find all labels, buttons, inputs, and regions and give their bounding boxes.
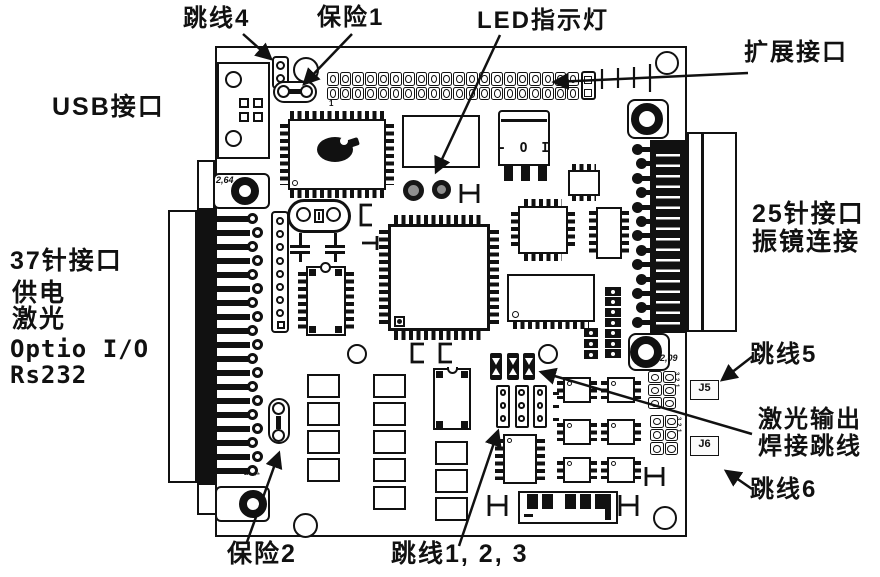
header-pin — [403, 72, 415, 86]
conn25-pin-stripe — [641, 147, 653, 152]
memory-chip — [507, 274, 595, 322]
hole-dim-text: 2,64 — [216, 176, 234, 185]
solder-jumper-arrow — [509, 358, 517, 365]
header-pin — [517, 72, 529, 86]
pad-square — [435, 469, 468, 493]
cap-lead — [334, 254, 337, 262]
header-pin — [390, 72, 402, 86]
label-led-indicator: LED指示灯 — [477, 8, 609, 34]
soic8-grid-dot — [567, 423, 572, 428]
header-pin — [529, 72, 541, 86]
conn37-pin-ring — [252, 339, 263, 350]
vheader9-pin — [276, 257, 284, 265]
vheader6-cell — [605, 339, 621, 348]
label-jumper4: 跳线4 — [183, 6, 250, 32]
soic8-grid-pins — [635, 461, 641, 479]
bottom-pad-bar — [605, 494, 611, 520]
vheader6-cell — [605, 297, 621, 306]
qfp2-pins — [568, 212, 575, 249]
jumper4-pin — [276, 61, 285, 70]
j6-header-pin — [650, 442, 664, 455]
label-laser-output-1: 激光输出 — [758, 407, 862, 433]
header-pin — [365, 87, 377, 101]
vheader9-pin — [276, 283, 284, 291]
jumper123-pin — [518, 415, 525, 422]
row-number: 3 — [673, 372, 679, 375]
dsub25-shell — [687, 132, 737, 332]
fuse2-end — [272, 429, 285, 442]
conn25-pin-stripe — [641, 320, 653, 325]
header-pin — [479, 72, 491, 86]
capacitor-plate — [325, 245, 345, 248]
usb-pad — [253, 112, 263, 122]
label-jumper5: 跳线5 — [750, 342, 817, 368]
solder-jumper — [490, 353, 502, 380]
solder-jumpers — [490, 353, 540, 381]
label-jumpers123: 跳线1, 2, 3 — [391, 541, 529, 569]
bottom-pad — [580, 494, 591, 509]
conn37-pin-label: 1 — [259, 472, 263, 479]
conn37-pin — [215, 412, 250, 418]
mini-strip-cell — [584, 328, 598, 337]
conn37-pin-ring — [247, 381, 258, 392]
header-pin — [390, 87, 402, 101]
usb-pad — [225, 130, 242, 147]
j5-header-pin — [648, 371, 662, 383]
conn25-pin-stripe — [641, 262, 653, 267]
led-indicator-2 — [432, 180, 451, 199]
label-fuse1: 保险1 — [317, 5, 384, 31]
label-laser-output-2: 焊接跳线 — [758, 434, 862, 460]
dsub37-body — [195, 210, 217, 482]
soic8-grid-dot — [611, 423, 616, 428]
jumper123-pin — [500, 389, 507, 396]
label-conn37-optio: Optio I/O — [10, 336, 149, 362]
soic8-grid-pins — [591, 461, 597, 479]
dsub25-pin-area — [628, 140, 688, 333]
conn37-pin-ring — [252, 423, 263, 434]
conn37-pin — [215, 398, 250, 404]
label-expansion-port: 扩展接口 — [744, 40, 848, 66]
conn37-pin — [215, 384, 250, 390]
relay-corner — [461, 421, 468, 428]
header-pin — [441, 72, 453, 86]
soic16-corner-pad — [335, 269, 342, 276]
pad-square — [373, 486, 406, 510]
conn37-pin-ring — [247, 241, 258, 252]
hole-dim-text: 2,09 — [660, 354, 678, 363]
vheader6 — [605, 287, 621, 360]
conn25-pin-stripe — [641, 233, 653, 238]
memory-pins — [513, 322, 589, 329]
conn37-pin — [215, 272, 250, 278]
conn37-pin-ring — [247, 353, 258, 364]
pad-square — [373, 430, 406, 454]
bottom-pad — [527, 494, 538, 509]
regulator-tab-line — [501, 119, 547, 122]
usb-pad — [253, 98, 263, 108]
fuse2-body — [276, 416, 281, 429]
vheader6-cell — [605, 287, 621, 296]
solder-jumper-arrow — [525, 368, 533, 375]
conn25-pin-stripe — [641, 205, 653, 210]
conn37-pin-ring — [247, 297, 258, 308]
j5-row-numbers: 3 2 1 — [679, 372, 682, 390]
led-indicator-1 — [403, 180, 424, 201]
qfp2-chip — [518, 206, 568, 254]
conn37-pin — [215, 328, 250, 334]
conn37-pin-ring — [252, 395, 263, 406]
header-end-pad — [584, 76, 592, 84]
conn37-pin — [215, 356, 250, 362]
qfp2-pins — [511, 212, 518, 249]
label-jumper6: 跳线6 — [750, 477, 817, 503]
label-conn37-rs232: Rs232 — [10, 362, 87, 388]
header-pin — [340, 87, 352, 101]
soic8-grid-dot — [611, 381, 616, 386]
solder-jumper — [523, 353, 535, 380]
crystal-pad — [326, 207, 341, 222]
mount-hole — [538, 344, 558, 364]
soic8-grid-pins — [635, 423, 641, 441]
header-pin — [529, 87, 541, 101]
soic8-grid-pins — [591, 381, 597, 399]
soic14b-pins — [537, 439, 545, 480]
row-number: 2 — [673, 378, 679, 381]
conn37-pin-number: 1 — [253, 472, 260, 476]
pad-square — [373, 374, 406, 398]
j6-header-pin — [650, 415, 664, 428]
header-pin — [428, 72, 440, 86]
header-pin — [416, 72, 428, 86]
pad-square — [373, 402, 406, 426]
jumper123-strip — [496, 385, 510, 428]
j6-row-numbers: 3 2 1 — [681, 417, 684, 435]
qfp2-pins — [524, 254, 562, 261]
j5-header-pin — [648, 384, 662, 396]
conn37-pin — [215, 300, 250, 306]
header-end-pad — [584, 89, 592, 97]
soic8-grid-pins — [591, 423, 597, 441]
cpu-pins — [394, 331, 484, 340]
conn37-pin-ring — [247, 213, 258, 224]
conn37-pin — [215, 440, 250, 446]
row-number: 2 — [675, 423, 681, 426]
header-pin — [441, 87, 453, 101]
row-number: 1 — [675, 429, 681, 432]
main-header — [327, 72, 579, 100]
jumper123-pin — [518, 389, 525, 396]
header-pin — [567, 87, 579, 101]
header-pin — [542, 72, 554, 86]
regulator-leg — [538, 166, 547, 181]
pad-square — [435, 497, 468, 521]
header-pin — [466, 87, 478, 101]
label-conn25-galvo: 振镜连接 — [752, 229, 860, 257]
mount-hole — [653, 506, 677, 530]
soic14-pins — [589, 211, 596, 255]
label-conn37-title: 37针接口 — [10, 248, 123, 276]
jumper123-pin — [537, 389, 544, 396]
jumpers123-headers — [496, 385, 556, 429]
jumper123-pin — [537, 402, 544, 409]
usb-pad — [239, 98, 249, 108]
screw-hole-icon — [231, 177, 259, 205]
vheader9-end-pad — [277, 321, 285, 329]
j5-label: J5 — [690, 383, 719, 394]
jumper123-strip — [533, 385, 547, 428]
header-pin — [555, 72, 567, 86]
conn25-pin-stripe — [641, 219, 653, 224]
conn25-pin-stripe — [641, 248, 653, 253]
j6-header-pin — [650, 429, 664, 442]
qfp-logo-pins — [290, 190, 384, 198]
conn37-pin-ring — [252, 255, 263, 266]
cpu-pin1-dot — [397, 319, 402, 324]
bottom-pad — [542, 494, 553, 509]
solder-jumper-arrow — [525, 358, 533, 365]
usb-pad — [239, 112, 249, 122]
j6-header — [650, 415, 678, 455]
row-number: 1 — [673, 384, 679, 387]
solder-jumper — [507, 353, 519, 380]
vheader9-pin — [276, 296, 284, 304]
row-number: 3 — [675, 417, 681, 420]
jumper123-pin — [500, 415, 507, 422]
vheader6-cell — [605, 318, 621, 327]
header-pin1-label: 1 — [329, 100, 333, 108]
soic14-chip — [596, 207, 622, 259]
crystal-body-line — [318, 212, 320, 220]
dsub25-body-dashes — [656, 146, 680, 327]
pad-square — [307, 458, 340, 482]
header-pin — [517, 87, 529, 101]
header-pin — [555, 87, 567, 101]
jumper123-pin — [518, 402, 525, 409]
pad-square — [307, 430, 340, 454]
jumper-tick — [553, 418, 559, 421]
conn37-pin — [215, 258, 250, 264]
j5-header-pin — [648, 397, 662, 409]
conn37-pin-ring — [252, 367, 263, 378]
header-pin — [453, 72, 465, 86]
capacitor-plate — [290, 245, 310, 248]
header-pin — [504, 72, 516, 86]
header-pin — [428, 87, 440, 101]
pad-square — [435, 441, 468, 465]
conn37-pin-ring — [252, 311, 263, 322]
mount-hole — [293, 513, 318, 538]
conn37-pin — [215, 454, 250, 460]
soic16-pins — [298, 272, 306, 330]
soic14b-dot — [507, 438, 512, 443]
pcb-diagram: 2,64 2,09 1 - O I — [0, 0, 880, 577]
qfp2-pins — [524, 199, 562, 206]
pad-square — [307, 374, 340, 398]
header-pin — [403, 87, 415, 101]
mount-hole — [655, 51, 679, 75]
pad-square — [307, 402, 340, 426]
header-pin — [453, 87, 465, 101]
soic8-grid-pins — [635, 381, 641, 399]
header-pin — [327, 72, 339, 86]
dsub25-shell-inner-line — [701, 134, 704, 330]
soic8-grid-dot — [611, 461, 616, 466]
conn37-pin-ring — [247, 269, 258, 280]
qfp-logo-pins — [386, 124, 394, 185]
header-pin — [378, 87, 390, 101]
soic16-notch — [320, 262, 331, 273]
header-pin — [491, 72, 503, 86]
label-conn37-laser: 激光 — [12, 306, 66, 334]
cpu-pins — [490, 230, 499, 325]
soic14b-pins — [495, 439, 503, 480]
cpu-chip — [388, 224, 490, 331]
mini-strip-cell — [584, 339, 598, 348]
header-pin — [365, 72, 377, 86]
jumper123-pin — [500, 402, 507, 409]
vheader9-pin — [276, 309, 284, 317]
header-pin — [416, 87, 428, 101]
conn37-pin-ring — [252, 227, 263, 238]
header-pin — [567, 72, 579, 86]
header-pin — [504, 87, 516, 101]
header-pin — [327, 87, 339, 101]
header-pin — [340, 72, 352, 86]
vheader9-pin — [276, 243, 284, 251]
component-outline-box — [402, 115, 480, 168]
header-pin — [378, 72, 390, 86]
conn37-pin-ring — [247, 325, 258, 336]
soic16-corner-pad — [309, 326, 316, 333]
arrow-jumper5 — [722, 356, 753, 380]
conn37-pin-ring — [247, 437, 258, 448]
cap-lead — [299, 254, 302, 262]
header-pin — [479, 87, 491, 101]
mini-strip-cell — [584, 350, 598, 359]
conn37-pin — [215, 370, 250, 376]
pad-square — [373, 458, 406, 482]
fuse1-body — [288, 89, 302, 94]
crystal-pad — [296, 207, 311, 222]
soic8-grid-dot — [567, 381, 572, 386]
conn37-pin-ring — [252, 451, 263, 462]
vheader9-pin — [276, 230, 284, 238]
relay-corner — [461, 371, 468, 378]
header-pin — [491, 87, 503, 101]
conn25-pin-stripe — [641, 305, 653, 310]
regulator-leg — [504, 166, 513, 181]
header-pin — [466, 72, 478, 86]
soic16-corner-pad — [335, 326, 342, 333]
qfp-logo-pins — [290, 111, 384, 119]
cap-lead — [299, 233, 302, 245]
label-usb-port: USB接口 — [52, 94, 165, 122]
dsub37-pin-area — [195, 210, 270, 490]
label-conn37-power: 供电 — [12, 280, 66, 308]
screw-hole-icon — [631, 103, 663, 135]
conn25-pin-stripe — [641, 277, 653, 282]
conn25-pin-stripe — [641, 190, 653, 195]
label-conn25-title: 25针接口 — [752, 201, 865, 229]
usb-pad — [225, 71, 242, 88]
header-pin — [352, 87, 364, 101]
j6-label: J6 — [690, 439, 719, 450]
solder-jumper-arrow — [492, 358, 500, 365]
bottom-pad-dash — [524, 514, 533, 517]
vheader6-cell — [605, 329, 621, 338]
conn37-pin — [215, 244, 250, 250]
conn37-pin-ring — [247, 409, 258, 420]
cpu-pins — [394, 215, 484, 224]
vheader9-pin — [276, 217, 284, 225]
soic8-grid-dot — [567, 461, 572, 466]
label-fuse2: 保险2 — [227, 541, 297, 569]
cap-lead — [334, 233, 337, 245]
memory-pin1-dot — [512, 311, 519, 318]
screw-hole-icon — [630, 336, 662, 368]
conn37-pin — [215, 230, 250, 236]
conn25-pin-stripe — [641, 161, 653, 166]
conn25-pin-stripe — [641, 176, 653, 181]
regulator-marking: - O I — [498, 142, 550, 155]
vheader6-cell — [605, 349, 621, 358]
mount-hole — [347, 344, 367, 364]
mini-strip — [584, 328, 598, 360]
relay-corner — [436, 421, 443, 428]
cpu-pins — [379, 230, 388, 325]
pin1-dot — [292, 180, 298, 186]
soic8-chip — [568, 170, 600, 196]
conn37-pin-ring — [252, 283, 263, 294]
conn37-pin-number: 28 — [242, 468, 249, 475]
conn37-pin — [215, 314, 250, 320]
j5-header-pin — [663, 397, 677, 409]
jumper123-strip — [515, 385, 529, 428]
solder-jumper-arrow — [492, 368, 500, 375]
vheader6-cell — [605, 308, 621, 317]
solder-jumper-arrow — [509, 368, 517, 375]
conn37-pin — [215, 286, 250, 292]
vheader9-pin — [276, 270, 284, 278]
chip-logo-notch — [340, 137, 348, 145]
soic16-pins — [346, 272, 354, 330]
screw-hole-icon — [239, 490, 267, 518]
arrow-jumper6 — [726, 471, 752, 489]
jumper-tick — [553, 405, 559, 408]
regulator-leg — [521, 166, 530, 181]
header-pin — [542, 87, 554, 101]
conn37-pin — [215, 342, 250, 348]
vheader9 — [271, 211, 289, 333]
bottom-pad — [565, 494, 576, 509]
conn37-pin — [215, 426, 250, 432]
j6-header-pin — [665, 442, 679, 455]
fuse2-end — [272, 402, 285, 415]
header-pin — [352, 72, 364, 86]
mount-hole — [293, 57, 319, 83]
qfp-logo-pins — [280, 124, 288, 185]
conn25-pin-stripe — [641, 291, 653, 296]
jumper123-pin — [537, 415, 544, 422]
j5-header — [648, 371, 676, 409]
relay-corner — [436, 371, 443, 378]
conn37-pin — [215, 216, 250, 222]
soic16-corner-pad — [309, 269, 316, 276]
